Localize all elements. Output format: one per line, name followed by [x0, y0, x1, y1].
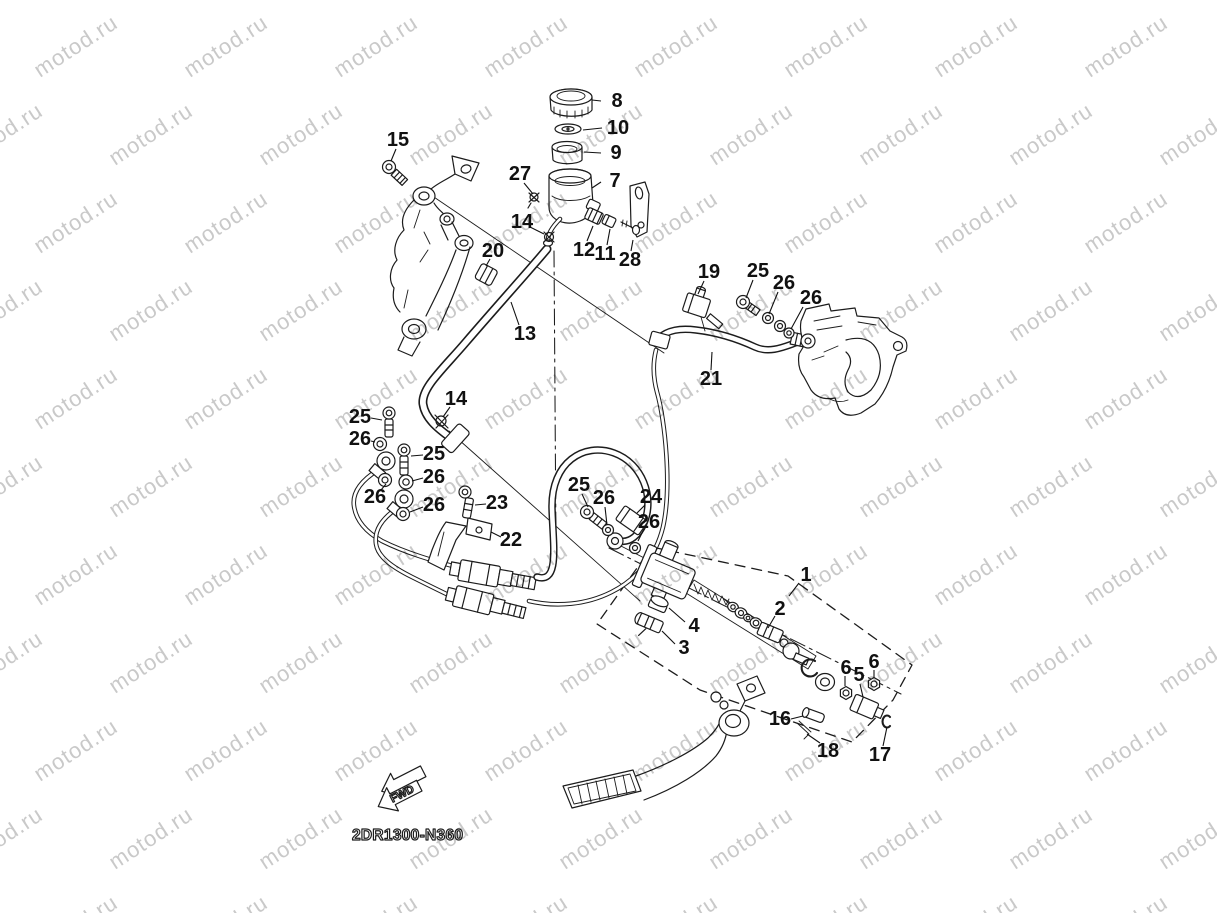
watermark-text: motod.ru: [29, 538, 122, 611]
watermark-text: motod.ru: [929, 10, 1022, 83]
watermark-text: motod.ru: [629, 362, 722, 435]
watermark-text: motod.ru: [0, 626, 47, 699]
watermark-text: motod.ru: [29, 362, 122, 435]
callout-label-13: 13: [514, 323, 536, 345]
callout-label-25: 25: [747, 260, 769, 282]
bolt-15: [383, 161, 408, 186]
watermark-text: motod.ru: [404, 450, 497, 523]
washer-26-loop-a: [603, 525, 614, 536]
spring: [694, 584, 729, 605]
callout-label-4: 4: [688, 615, 700, 637]
watermark-text: motod.ru: [1079, 186, 1172, 259]
watermark-text: motod.ru: [29, 714, 122, 787]
callout-label-23: 23: [486, 492, 508, 514]
callout-label-7: 7: [609, 170, 620, 192]
callout-label-24: 24: [640, 486, 663, 508]
callout-leader: [412, 478, 423, 481]
watermark-text: motod.ru: [254, 98, 347, 171]
watermark-text: motod.ru: [179, 538, 272, 611]
callout-label-16: 16: [769, 708, 791, 730]
watermark-text: motod.ru: [104, 802, 197, 875]
callout-leader: [511, 302, 519, 325]
watermark-text: motod.ru: [329, 10, 422, 83]
watermark-text: motod.ru: [554, 274, 647, 347]
watermark-text: motod.ru: [929, 538, 1022, 611]
watermark-text: motod.ru: [404, 98, 497, 171]
callout-label-17: 17: [869, 744, 891, 766]
diaphragm-plate-10: [555, 124, 581, 134]
callout-leader: [791, 716, 803, 719]
watermark-text: motod.ru: [1004, 274, 1097, 347]
watermark-text: motod.ru: [29, 186, 122, 259]
watermark-text: motod.ru: [0, 98, 47, 171]
watermark-text: motod.ru: [779, 186, 872, 259]
bracket-22: [428, 518, 492, 570]
callout-label-25: 25: [423, 443, 445, 465]
watermark-text: motod.ru: [329, 362, 422, 435]
callout-label-3: 3: [678, 637, 689, 659]
watermark-text: motod.ru: [179, 362, 272, 435]
watermark-text: motod.ru: [104, 98, 197, 171]
watermark-text: motod.ru: [1079, 890, 1172, 913]
watermark-text: motod.ru: [629, 890, 722, 913]
watermark-text: motod.ru: [854, 274, 947, 347]
joint-11: [601, 214, 616, 228]
nut-6-a: [840, 687, 851, 700]
callout-leader: [411, 455, 423, 456]
callout-label-27: 27: [509, 163, 531, 185]
fwd-label: FWD: [388, 783, 416, 805]
watermark-text: motod.ru: [1004, 626, 1097, 699]
watermark-text: motod.ru: [704, 802, 797, 875]
pin-16: [801, 707, 825, 724]
callout-label-2: 2: [774, 598, 785, 620]
callout-leader: [475, 504, 486, 505]
callout-label-26: 26: [638, 511, 660, 533]
watermark-text: motod.ru: [404, 274, 497, 347]
watermark-text: motod.ru: [854, 802, 947, 875]
callout-leader: [592, 100, 601, 101]
banjo-bolt-25-lower: [398, 444, 410, 475]
watermark-text: motod.ru: [704, 98, 797, 171]
watermark-text: motod.ru: [854, 98, 947, 171]
watermark-text: motod.ru: [1079, 362, 1172, 435]
watermark-text: motod.ru: [329, 714, 422, 787]
callout-leader: [669, 608, 685, 622]
watermark-text: motod.ru: [179, 714, 272, 787]
callout-label-12: 12: [573, 239, 595, 261]
watermark-text: motod.ru: [779, 890, 872, 913]
watermark-text: motod.ru: [179, 10, 272, 83]
watermark-text: motod.ru: [929, 362, 1022, 435]
watermark-text: motod.ru: [1154, 450, 1217, 523]
watermark-text: motod.ru: [1079, 538, 1172, 611]
callout-leader: [592, 182, 601, 188]
watermark-text: motod.ru: [929, 714, 1022, 787]
callout-leader: [662, 631, 675, 644]
watermark-text: motod.ru: [779, 10, 872, 83]
watermark-text: motod.ru: [1079, 714, 1172, 787]
fwd-arrow: FWD: [367, 760, 434, 818]
parts-diagram-page: FWD 2DR1300-N360 81097271412112815201319…: [0, 0, 1217, 913]
watermark-text: motod.ru: [0, 450, 47, 523]
watermark-text: motod.ru: [254, 802, 347, 875]
watermark-text: motod.ru: [104, 450, 197, 523]
watermark-text: motod.ru: [104, 274, 197, 347]
watermark-text: motod.ru: [1079, 10, 1172, 83]
callout-label-22: 22: [500, 529, 522, 551]
reservoir-cap-8: [550, 89, 592, 118]
watermark-text: motod.ru: [1004, 450, 1097, 523]
watermark-text: motod.ru: [104, 626, 197, 699]
callout-label-26: 26: [364, 486, 386, 508]
exploded-parts-diagram: FWD 2DR1300-N360 81097271412112815201319…: [0, 0, 1217, 913]
watermark-text: motod.ru: [704, 450, 797, 523]
watermark-text: motod.ru: [479, 890, 572, 913]
watermark-text: motod.ru: [329, 890, 422, 913]
washer-26-c: [399, 475, 413, 489]
watermark-text: motod.ru: [0, 802, 47, 875]
watermark-text: motod.ru: [554, 802, 647, 875]
watermark-text: motod.ru: [1154, 98, 1217, 171]
washer-26-a: [374, 438, 387, 451]
callout-leader: [371, 418, 382, 420]
callout-label-26: 26: [800, 287, 822, 309]
washer-26-d: [397, 508, 410, 521]
watermark-text: motod.ru: [404, 626, 497, 699]
watermark-text: motod.ru: [929, 890, 1022, 913]
watermark-text: motod.ru: [929, 186, 1022, 259]
watermark-text: motod.ru: [1004, 98, 1097, 171]
callout-label-26: 26: [349, 428, 371, 450]
watermark-text: motod.ru: [1154, 626, 1217, 699]
callout-label-6: 6: [840, 657, 851, 679]
watermark-text: motod.ru: [29, 890, 122, 913]
watermark-text: motod.ru: [779, 538, 872, 611]
watermark-text: motod.ru: [0, 274, 47, 347]
banjo-bolt-25-upper: [383, 407, 395, 437]
callout-label-9: 9: [610, 142, 621, 164]
watermark-text: motod.ru: [629, 714, 722, 787]
watermark-text: motod.ru: [479, 362, 572, 435]
watermark-text: motod.ru: [254, 450, 347, 523]
callout-label-11: 11: [594, 243, 615, 265]
callout-label-19: 19: [698, 261, 720, 283]
watermark-text: motod.ru: [779, 714, 872, 787]
washer-26-caliper-c: [784, 328, 794, 338]
watermark-text: motod.ru: [854, 450, 947, 523]
watermark-text: motod.ru: [479, 714, 572, 787]
clip-17: [883, 716, 890, 728]
watermark-text: motod.ru: [329, 186, 422, 259]
watermark-text: motod.ru: [1004, 802, 1097, 875]
watermark-text: motod.ru: [254, 274, 347, 347]
watermark-text: motod.ru: [179, 890, 272, 913]
watermark-text: motod.ru: [554, 626, 647, 699]
watermark-text: motod.ru: [1154, 802, 1217, 875]
reference-lines: [425, 191, 901, 694]
watermark-text: motod.ru: [179, 186, 272, 259]
washer-26-loop-b: [630, 543, 641, 554]
callout-label-14: 14: [445, 388, 468, 410]
watermark-text: motod.ru: [29, 10, 122, 83]
watermark-text: motod.ru: [1154, 274, 1217, 347]
watermark-text: motod.ru: [254, 626, 347, 699]
watermark-text: motod.ru: [479, 10, 572, 83]
watermark-text: motod.ru: [629, 10, 722, 83]
washer-26-caliper-b: [775, 321, 786, 332]
